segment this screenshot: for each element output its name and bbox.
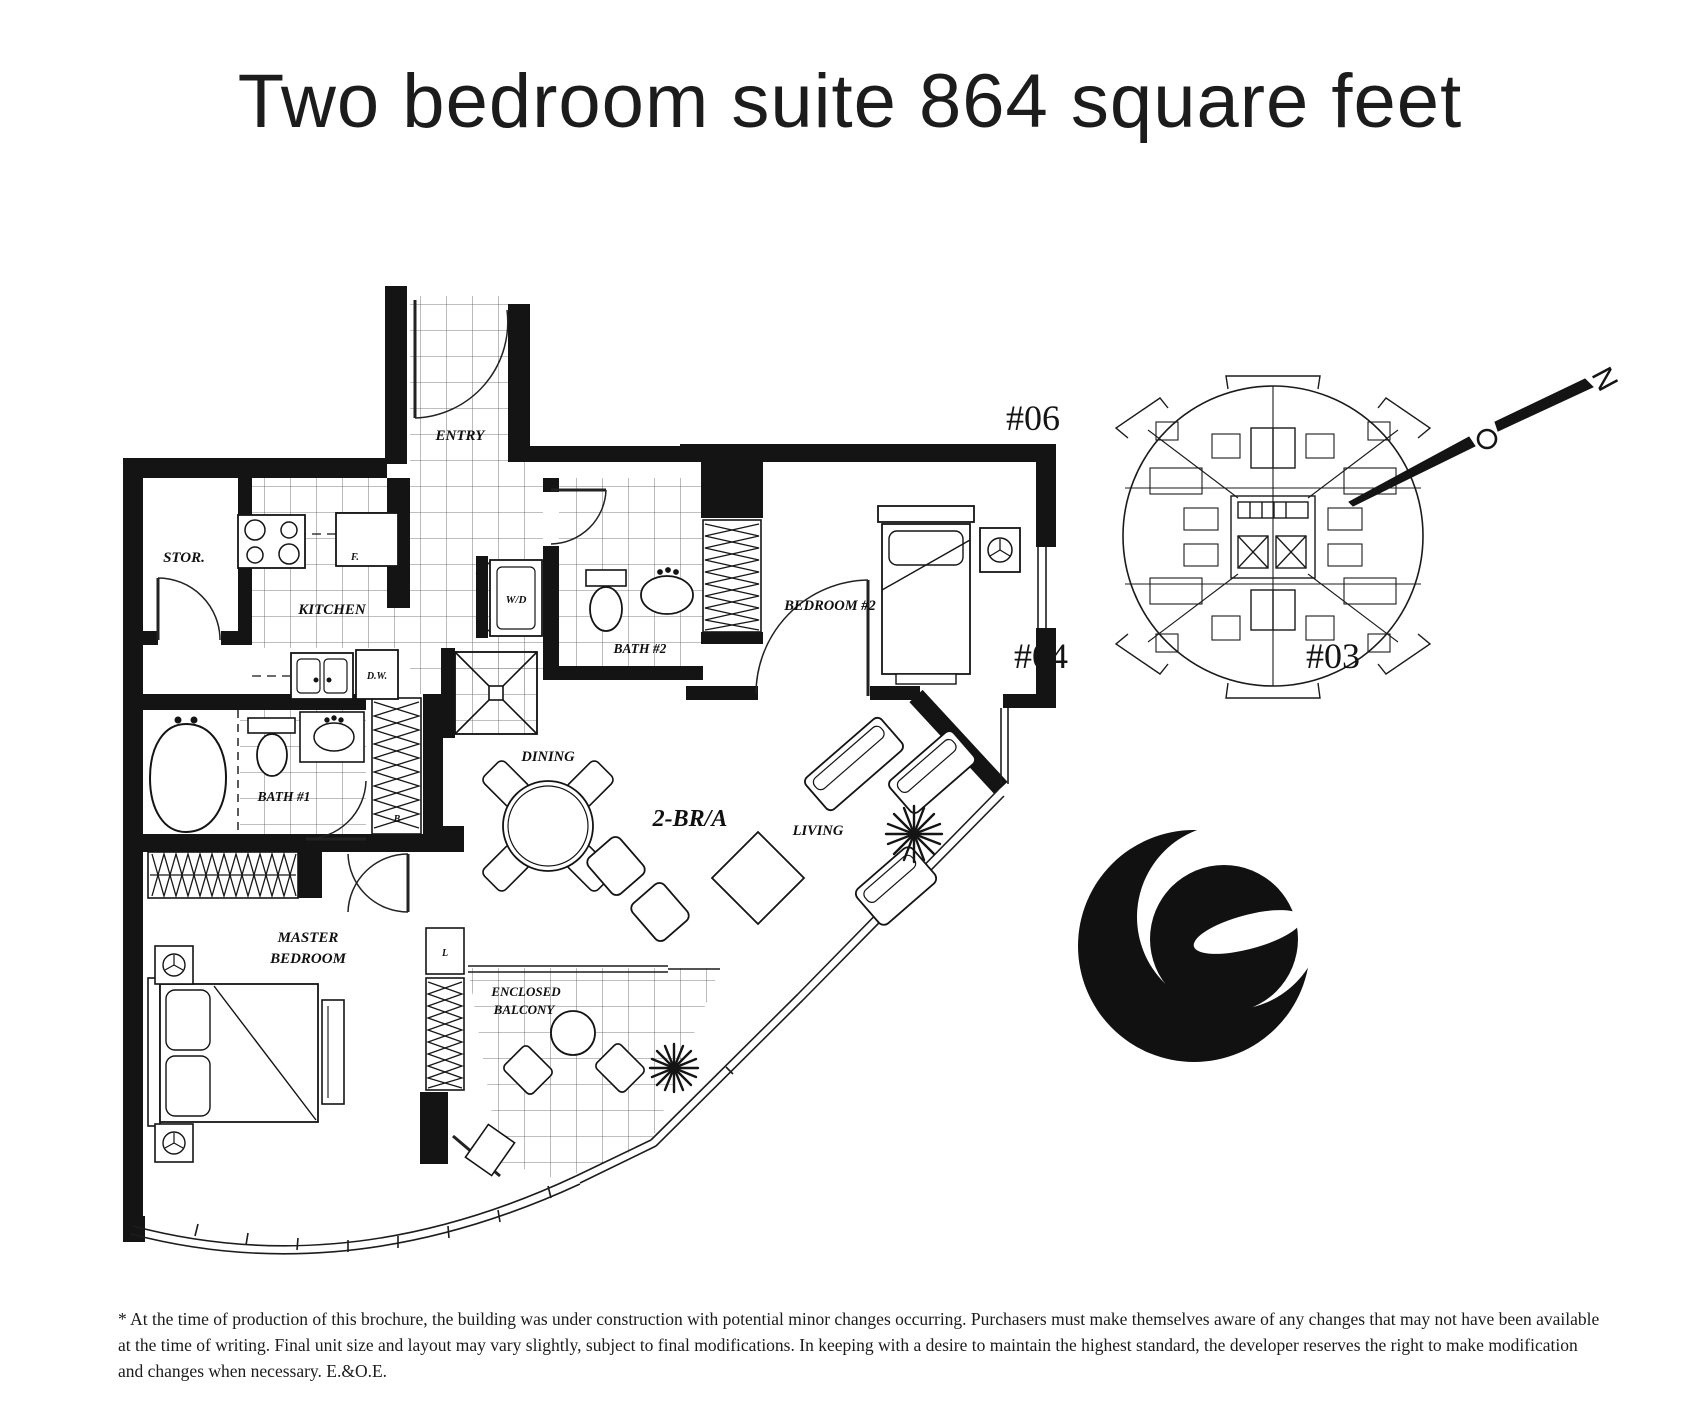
balcony-label-2: BALCONY [493, 1002, 556, 1017]
bath2-sink [641, 576, 693, 614]
toilet1-tank [248, 718, 295, 733]
living-label: LIVING [792, 823, 844, 839]
master-label-2: BEDROOM [269, 951, 347, 967]
logo-drawing [1072, 818, 1322, 1074]
north-arrow-drawing: N [1335, 358, 1625, 528]
disclaimer-line-1: * At the time of production of this broc… [118, 1306, 1653, 1332]
dining-label: DINING [520, 749, 575, 765]
bath2-label: BATH #2 [613, 641, 667, 656]
bath1-label: BATH #1 [257, 789, 311, 804]
balcony-table [551, 1011, 595, 1055]
master-bed [160, 984, 318, 1122]
bath2-floor [559, 478, 703, 668]
linen-closet-label: L [441, 948, 448, 959]
kitchen-label: KITCHEN [297, 602, 367, 618]
storage-label: STOR. [163, 550, 205, 566]
fridge [336, 513, 398, 566]
unit-03-label: #03 [1306, 636, 1360, 676]
bedroom2-label: BEDROOM #2 [783, 598, 875, 614]
toilet2-bowl [590, 587, 622, 631]
bed2 [882, 524, 970, 674]
unit-type-label: 2-BR/A [652, 806, 728, 832]
master-label-1: MASTER [277, 930, 339, 946]
toilet1-bowl [257, 734, 287, 776]
floor-plan-drawing: ENTRY STOR. KITCHEN F. D.W. W/D BATH #2 … [108, 278, 1058, 1288]
shower [455, 652, 537, 734]
plants [650, 806, 942, 1092]
entry-label: ENTRY [435, 428, 487, 444]
disclaimer: * At the time of production of this broc… [118, 1306, 1653, 1384]
page-title: Two bedroom suite 864 square feet [0, 58, 1700, 145]
unit-04-label: #04 [1014, 636, 1068, 676]
floor-plan: ENTRY STOR. KITCHEN F. D.W. W/D BATH #2 … [108, 278, 1058, 1288]
dishwasher-label: D.W. [366, 671, 387, 682]
bathtub [150, 724, 226, 832]
coffee-table [712, 832, 804, 924]
broom-closet-label: B [393, 814, 401, 825]
toilet2-tank [586, 570, 626, 586]
kitchen-sink [291, 653, 353, 699]
washer-dryer-label: W/D [506, 594, 527, 606]
north-label: N [1585, 362, 1624, 397]
north-arrow: N [1335, 358, 1625, 528]
fridge-label: F. [350, 552, 359, 563]
balcony-label-1: ENCLOSED [490, 984, 561, 999]
unit-06-label: #06 [1006, 398, 1060, 438]
key-plan-labels: #06 #04 #03 [1006, 398, 1360, 676]
disclaimer-line-2: at the time of writing. Final unit size … [118, 1332, 1653, 1358]
brochure-page: { "title": "Two bedroom suite 864 square… [0, 0, 1700, 1425]
disclaimer-line-3: and changes when necessary. E.&O.E. [118, 1358, 1653, 1384]
developer-logo [1072, 818, 1322, 1074]
dining-table [503, 781, 593, 871]
